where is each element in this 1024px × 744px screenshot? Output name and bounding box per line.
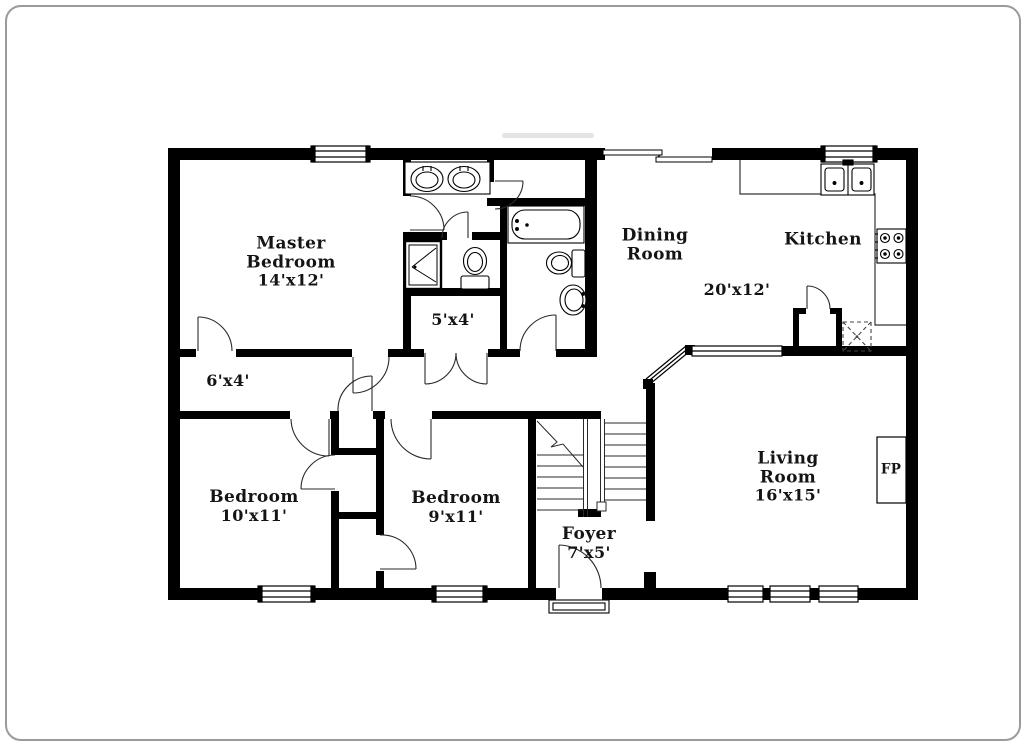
door-swing-icon [807, 286, 830, 309]
room-dims: 20'x12' [704, 281, 771, 299]
door-swing-icon [198, 317, 232, 351]
room-label-bedroom-left: Bedroom 10'x11' [209, 488, 299, 524]
double-door-swing-icon [425, 353, 487, 384]
floor-plan-drawing [0, 0, 1024, 744]
room-label-kitchen: Kitchen [784, 231, 862, 250]
fireplace-abbr: FP [881, 463, 901, 478]
room-label-closet-5x4: 5'x4' [431, 311, 475, 329]
staircase [537, 419, 646, 517]
room-dims: 9'x11' [411, 508, 501, 526]
room-dims: 14'x12' [229, 272, 353, 290]
room-label-dining-dims: 20'x12' [704, 281, 771, 299]
window-icon [770, 586, 810, 602]
room-name: Dining Room [609, 226, 701, 263]
room-label-dining: Dining Room [609, 226, 701, 263]
room-name: Master Bedroom [229, 235, 353, 272]
sink-icon [560, 285, 586, 315]
door-swing-icon [380, 535, 416, 569]
window-icon [311, 146, 370, 162]
room-dims: 10'x11' [209, 507, 299, 525]
door-swing-icon [353, 357, 389, 393]
window-icon [819, 586, 858, 602]
sliding-door-icon [603, 150, 712, 162]
window-icon [432, 586, 487, 602]
room-name: Bedroom [411, 489, 501, 508]
room-label-living: Living Room 16'x15' [742, 450, 834, 505]
room-dims: 5'x4' [431, 311, 475, 329]
window-icon [692, 346, 782, 356]
room-name: Bedroom [209, 488, 299, 507]
room-label-bedroom-mid: Bedroom 9'x11' [411, 489, 501, 525]
room-dims: 16'x15' [742, 487, 834, 505]
door-swing-icon [291, 419, 329, 456]
door-swing-icon [391, 419, 431, 459]
room-dims: 6'x4' [206, 372, 250, 390]
window-icon [728, 586, 763, 602]
room-label-closet-6x4: 6'x4' [206, 372, 250, 390]
door-swing-icon [301, 455, 335, 489]
shower-icon [405, 241, 441, 289]
double-vanity-sink-icon [405, 162, 490, 194]
room-label-foyer: Foyer 7'x5' [562, 525, 616, 561]
floor-plan-canvas: Master Bedroom 14'x12' 6'x4' 5'x4' Bedro… [0, 0, 1024, 744]
door-swing-icon [520, 315, 556, 351]
window-icon [258, 586, 315, 602]
window-icon-diagonal [646, 346, 690, 384]
toilet-icon [461, 248, 489, 290]
room-name: Living Room [742, 450, 834, 487]
room-label-master-bedroom: Master Bedroom 14'x12' [229, 235, 353, 290]
room-dims: 7'x5' [562, 544, 616, 562]
room-name: Foyer [562, 525, 616, 544]
room-name: Kitchen [784, 231, 862, 250]
watermark-smudge [502, 133, 594, 138]
stove-icon [875, 229, 906, 263]
kitchen-sink-icon [821, 160, 874, 195]
bathtub-icon [508, 206, 584, 243]
fireplace-label: FP [881, 463, 901, 478]
front-door-sill [549, 600, 609, 613]
door-swing-icon [410, 196, 444, 230]
toilet-icon [547, 250, 586, 277]
